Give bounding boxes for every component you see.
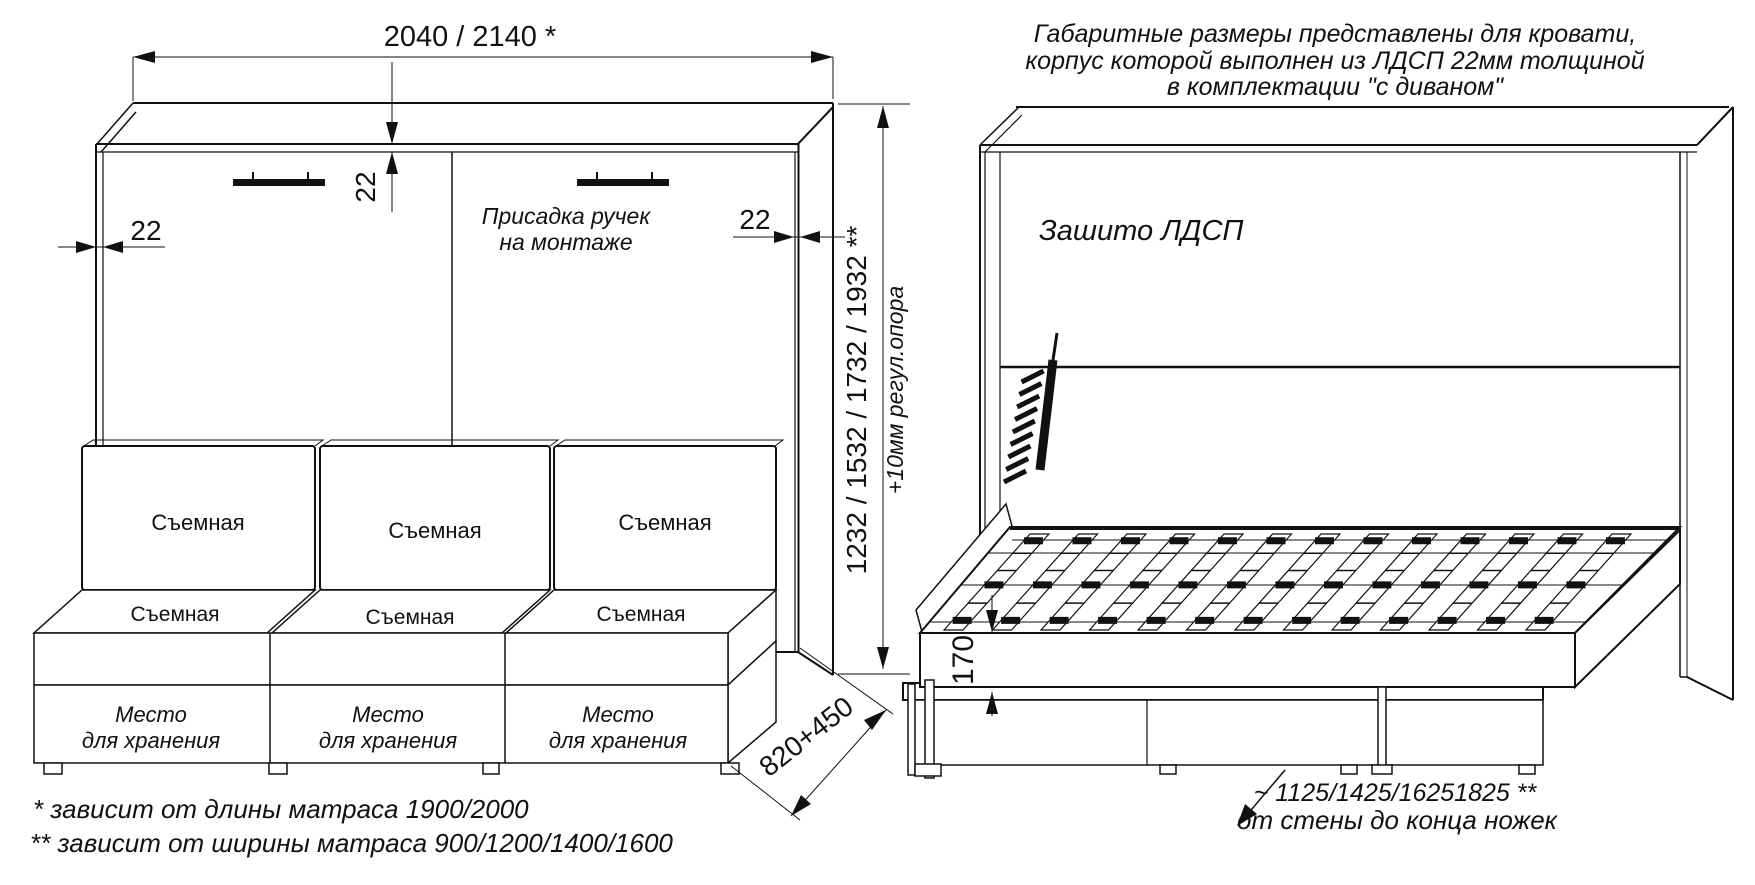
gas-lift-stripe [1013, 421, 1035, 432]
height-note-label: +10мм регул.опора [882, 286, 908, 494]
header-note: корпус которой выполнен из ЛДСП 22мм тол… [1025, 47, 1644, 75]
left-thickness-dimension: 22 [58, 215, 165, 253]
technical-drawing-page: Съемная Съемная Съемная Съемная Съемная … [0, 0, 1755, 885]
storage-label: для хранения [549, 728, 688, 753]
header-note: Габаритные размеры представлены для кров… [1034, 20, 1636, 48]
panel-label: Зашито ЛДСП [1039, 215, 1244, 247]
handle-right [577, 172, 669, 186]
floor-dim-label: ~ 1125/1425/16251825 ** [1254, 779, 1538, 807]
closed-bed-view: Съемная Съемная Съемная Съемная Съемная … [30, 21, 910, 858]
storage-label: для хранения [319, 728, 458, 753]
cushion-label: Съемная [388, 518, 481, 543]
front-band [34, 633, 728, 685]
open-bed-view: Габаритные размеры представлены для кров… [903, 20, 1733, 835]
handles-note: на монтаже [499, 229, 632, 255]
base-feet [920, 765, 1535, 774]
bed-platform [916, 504, 1680, 687]
cushion-label: Съемная [130, 603, 219, 626]
bed-base [903, 683, 1543, 774]
cushion-label: Съемная [618, 510, 711, 535]
gas-lift-mechanism [1004, 333, 1057, 482]
gas-lift-stripe [1011, 434, 1033, 445]
height-dimension: 1232 / 1532 / 1732 / 1932 ** +10мм регул… [838, 104, 910, 674]
footnote-1: * зависит от длины матраса 1900/2000 [33, 794, 529, 824]
handles-note: Присадка ручек [482, 203, 652, 229]
gas-lift-stripe [1019, 384, 1041, 395]
floor-dim-note-label: от стены до конца ножек [1237, 805, 1559, 835]
gas-lift-stripe [1022, 371, 1044, 382]
storage-label: Место [582, 702, 654, 727]
gas-lift-stripe [1017, 396, 1039, 407]
storage-label: для хранения [82, 728, 221, 753]
top-thickness-label: 22 [350, 171, 381, 202]
gas-lift-stripe [1008, 446, 1030, 457]
handle-left [233, 172, 325, 186]
sofa-legs [44, 763, 739, 774]
frame-height-label: 170 [947, 635, 980, 685]
gas-lift-stripe [1015, 409, 1037, 420]
cushion-label: Съемная [596, 603, 685, 626]
sofa-seat-cushions: Съемная Съемная Съемная [34, 590, 776, 633]
frame-front-face [920, 633, 1575, 687]
storage-label: Место [352, 702, 424, 727]
footnote-2: ** зависит от ширины матраса 900/1200/14… [30, 828, 673, 858]
right-thickness-label: 22 [739, 204, 770, 235]
width-dimension: 2040 / 2140 * [133, 21, 833, 101]
height-dimension-label: 1232 / 1532 / 1732 / 1932 ** [841, 226, 872, 575]
storage-label: Место [115, 702, 187, 727]
wall-bed-drawing: Съемная Съемная Съемная Съемная Съемная … [0, 0, 1755, 885]
gas-lift-stripe [1006, 459, 1028, 470]
top-thickness-dimension: 22 [350, 62, 398, 212]
left-thickness-label: 22 [130, 215, 161, 246]
gas-lift-stripe [1004, 471, 1026, 482]
gas-rod [1053, 333, 1057, 360]
header-note: в комплектации "с диваном" [1167, 73, 1504, 101]
cushion-label: Съемная [365, 606, 454, 629]
sofa-back-cushions: Съемная Съемная Съемная [82, 440, 783, 590]
gas-piston [1040, 360, 1053, 470]
width-dimension-label: 2040 / 2140 * [384, 21, 557, 53]
cushion-label: Съемная [151, 510, 244, 535]
floor-distance-note: ~ 1125/1425/16251825 ** от стены до конц… [1237, 770, 1559, 835]
right-thickness-dimension: 22 [733, 204, 845, 243]
